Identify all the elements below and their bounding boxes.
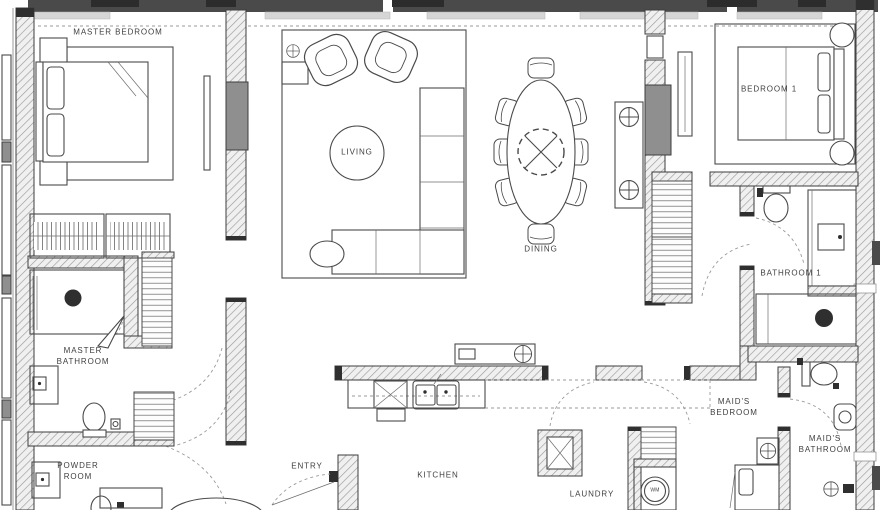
armchair (360, 27, 422, 87)
ceiling-light-icon (287, 45, 300, 58)
entry-rug (168, 498, 264, 510)
floor-plan-drawing (0, 0, 880, 510)
door-arc-bathroom1 (756, 218, 804, 264)
armchair (300, 30, 362, 91)
powder-room-fixtures (32, 462, 124, 510)
round-nightstand (830, 141, 854, 165)
kitchen-fixtures (348, 344, 710, 421)
exterior-right-wall (854, 0, 880, 510)
maids-bathroom-fixtures (797, 358, 856, 496)
pocket-door-bedroom1 (645, 85, 671, 155)
headboard (36, 62, 43, 161)
ceiling-light-icon (620, 108, 639, 127)
tv-panel (204, 76, 210, 170)
shelf-unit (142, 258, 172, 346)
side-table (282, 62, 308, 84)
door-arc-maids-bathroom (790, 399, 841, 446)
bedroom1-furniture (678, 23, 855, 165)
sink-basin (815, 309, 833, 327)
round-nightstand (830, 23, 854, 47)
toilet-bowl (83, 403, 105, 431)
pocket-door-master (226, 82, 248, 150)
shelf-unit (652, 237, 692, 294)
shelf-unit (134, 392, 174, 440)
sink-basin (65, 290, 82, 307)
shower-head (843, 484, 854, 493)
master-bedroom-furniture (36, 38, 210, 185)
toilet-roll-holder (111, 419, 120, 429)
toilet-tank (83, 430, 106, 437)
door-arc-laundry (550, 382, 594, 426)
door-arc-maids-bedroom (644, 382, 690, 424)
bathroom1-fixtures (756, 186, 856, 344)
sink-faucet-icon (514, 345, 531, 362)
living-room-furniture (282, 27, 466, 278)
master-bathroom-fixtures (30, 270, 124, 437)
door-arc-entry (272, 474, 330, 505)
sofa-bottom (332, 230, 464, 274)
shelf-unit (652, 181, 692, 237)
shelf-unit (641, 427, 676, 461)
single-bed (735, 465, 779, 510)
toilet-tank (763, 186, 790, 193)
shower-enclosure (808, 190, 856, 286)
dining-chair (528, 224, 554, 244)
toilet-bowl (764, 194, 788, 222)
laundry-fixtures (538, 427, 676, 510)
door-arc-powder-room (160, 444, 226, 504)
nightstand (40, 160, 67, 185)
door-arc-corridor-entry (177, 390, 231, 445)
dining-chair (528, 58, 554, 78)
exterior-top-wall (28, 0, 878, 26)
headboard (834, 49, 844, 139)
door-leaf (98, 316, 124, 348)
door-arc-master-corridor (168, 348, 222, 402)
nightstand (40, 38, 67, 63)
floor-drain-icon (824, 482, 838, 496)
toilet-tank (802, 362, 810, 386)
living-label-circle (330, 126, 384, 180)
floor-plan: MASTER BEDROOM LIVING DINING BEDROOM 1 B… (0, 0, 880, 510)
vanity-counter (756, 294, 856, 344)
toilet-bowl (811, 363, 837, 385)
wash-basin (834, 404, 856, 430)
entry-furniture (100, 482, 334, 510)
ceiling-light-icon (620, 181, 639, 200)
ceiling-light-icon (760, 443, 775, 458)
bed (43, 62, 148, 162)
maids-bedroom-furniture (730, 438, 779, 510)
coffee-table (310, 241, 344, 267)
